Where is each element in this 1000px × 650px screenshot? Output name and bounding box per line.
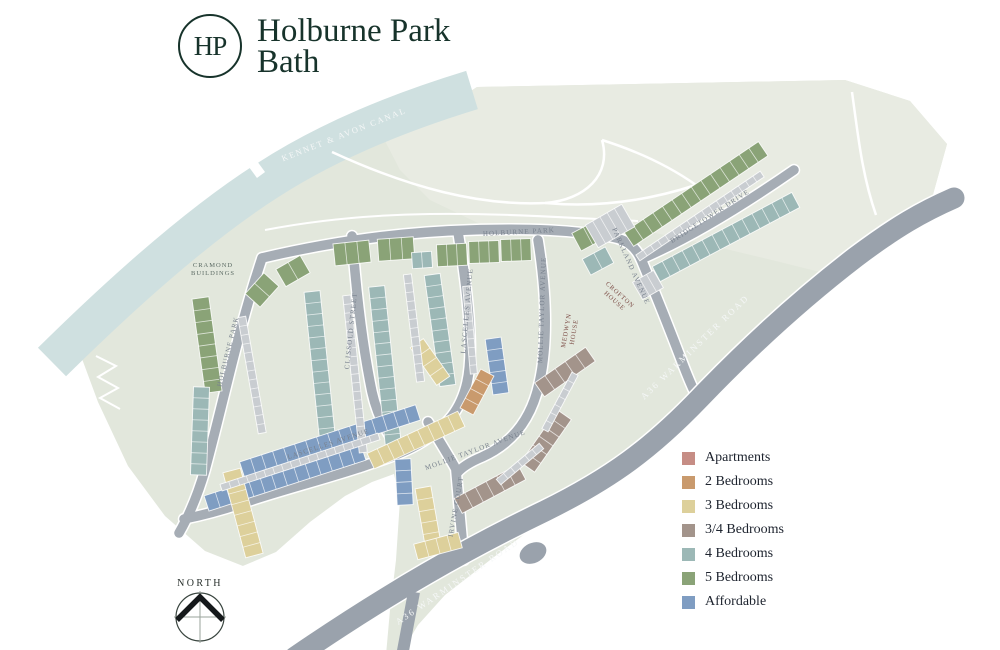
legend-swatch-b4 <box>682 548 695 561</box>
legend-swatch-b3 <box>682 500 695 513</box>
legend-label-b4: 4 Bedrooms <box>705 546 773 562</box>
house-row-b4 <box>411 251 432 268</box>
legend-item-b5: 5 Bedrooms <box>682 566 784 590</box>
svg-text:BUILDINGS: BUILDINGS <box>191 270 235 277</box>
house-row-b5 <box>469 240 500 263</box>
legend-item-b34: 3/4 Bedrooms <box>682 518 784 542</box>
legend-label-b34: 3/4 Bedrooms <box>705 522 784 538</box>
brand-monogram: HP <box>194 31 227 62</box>
legend-label-apartments: Apartments <box>705 450 770 466</box>
brand-title-line2: Bath <box>257 47 450 78</box>
legend-item-b3: 3 Bedrooms <box>682 494 784 518</box>
house-row-aff <box>395 459 413 506</box>
legend-label-b5: 5 Bedrooms <box>705 570 773 586</box>
house-row-b5 <box>377 237 414 261</box>
legend-item-b2: 2 Bedrooms <box>682 470 784 494</box>
legend-swatch-b2 <box>682 476 695 489</box>
legend: Apartments2 Bedrooms3 Bedrooms3/4 Bedroo… <box>682 446 784 614</box>
svg-text:CRAMOND: CRAMOND <box>193 262 233 269</box>
north-label: NORTH <box>177 578 223 589</box>
road-junction <box>516 538 550 568</box>
legend-label-b2: 2 Bedrooms <box>705 474 773 490</box>
site-plan-page: KENNET & AVON CANAL HOLBURNE PARK HOLBUR… <box>0 0 1000 650</box>
legend-item-b4: 4 Bedrooms <box>682 542 784 566</box>
house-row-b5 <box>436 243 467 267</box>
house-row-b5 <box>333 240 371 266</box>
house-row-b5 <box>501 238 532 261</box>
legend-label-b3: 3 Bedrooms <box>705 498 773 514</box>
cramond-buildings-label: CRAMOND BUILDINGS <box>191 262 235 277</box>
house-row-b4 <box>190 387 209 476</box>
brand-title-line1: Holburne Park <box>257 16 450 47</box>
brand-logo: HP <box>178 14 242 78</box>
legend-swatch-b34 <box>682 524 695 537</box>
legend-swatch-apartments <box>682 452 695 465</box>
page-title: Holburne Park Bath <box>257 16 450 78</box>
legend-swatch-aff <box>682 596 695 609</box>
site-map: KENNET & AVON CANAL HOLBURNE PARK HOLBUR… <box>0 0 1000 650</box>
legend-item-aff: Affordable <box>682 590 784 614</box>
legend-label-aff: Affordable <box>705 594 766 610</box>
legend-item-apartments: Apartments <box>682 446 784 470</box>
legend-swatch-b5 <box>682 572 695 585</box>
